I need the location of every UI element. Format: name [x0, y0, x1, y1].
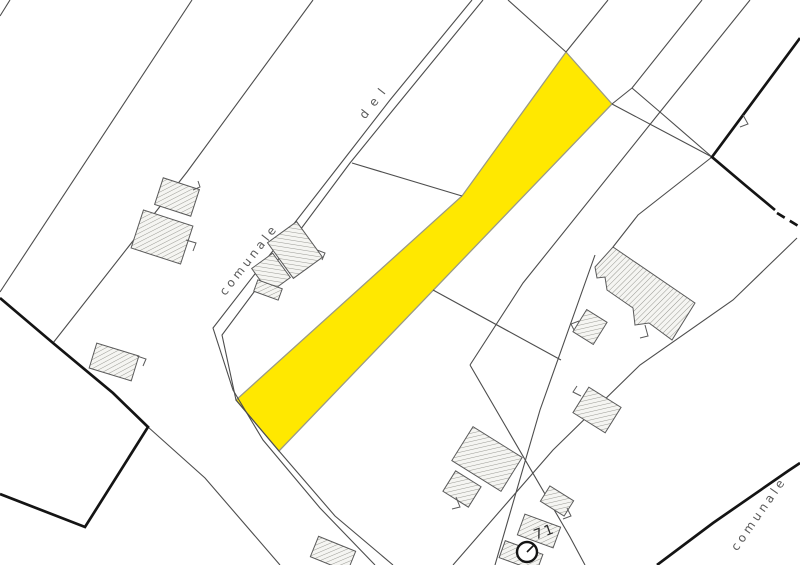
- well-circle-symbol: [517, 542, 537, 562]
- map-canvas: comunale del comunale 71: [0, 0, 800, 565]
- cadastral-map: comunale del comunale 71: [0, 0, 800, 565]
